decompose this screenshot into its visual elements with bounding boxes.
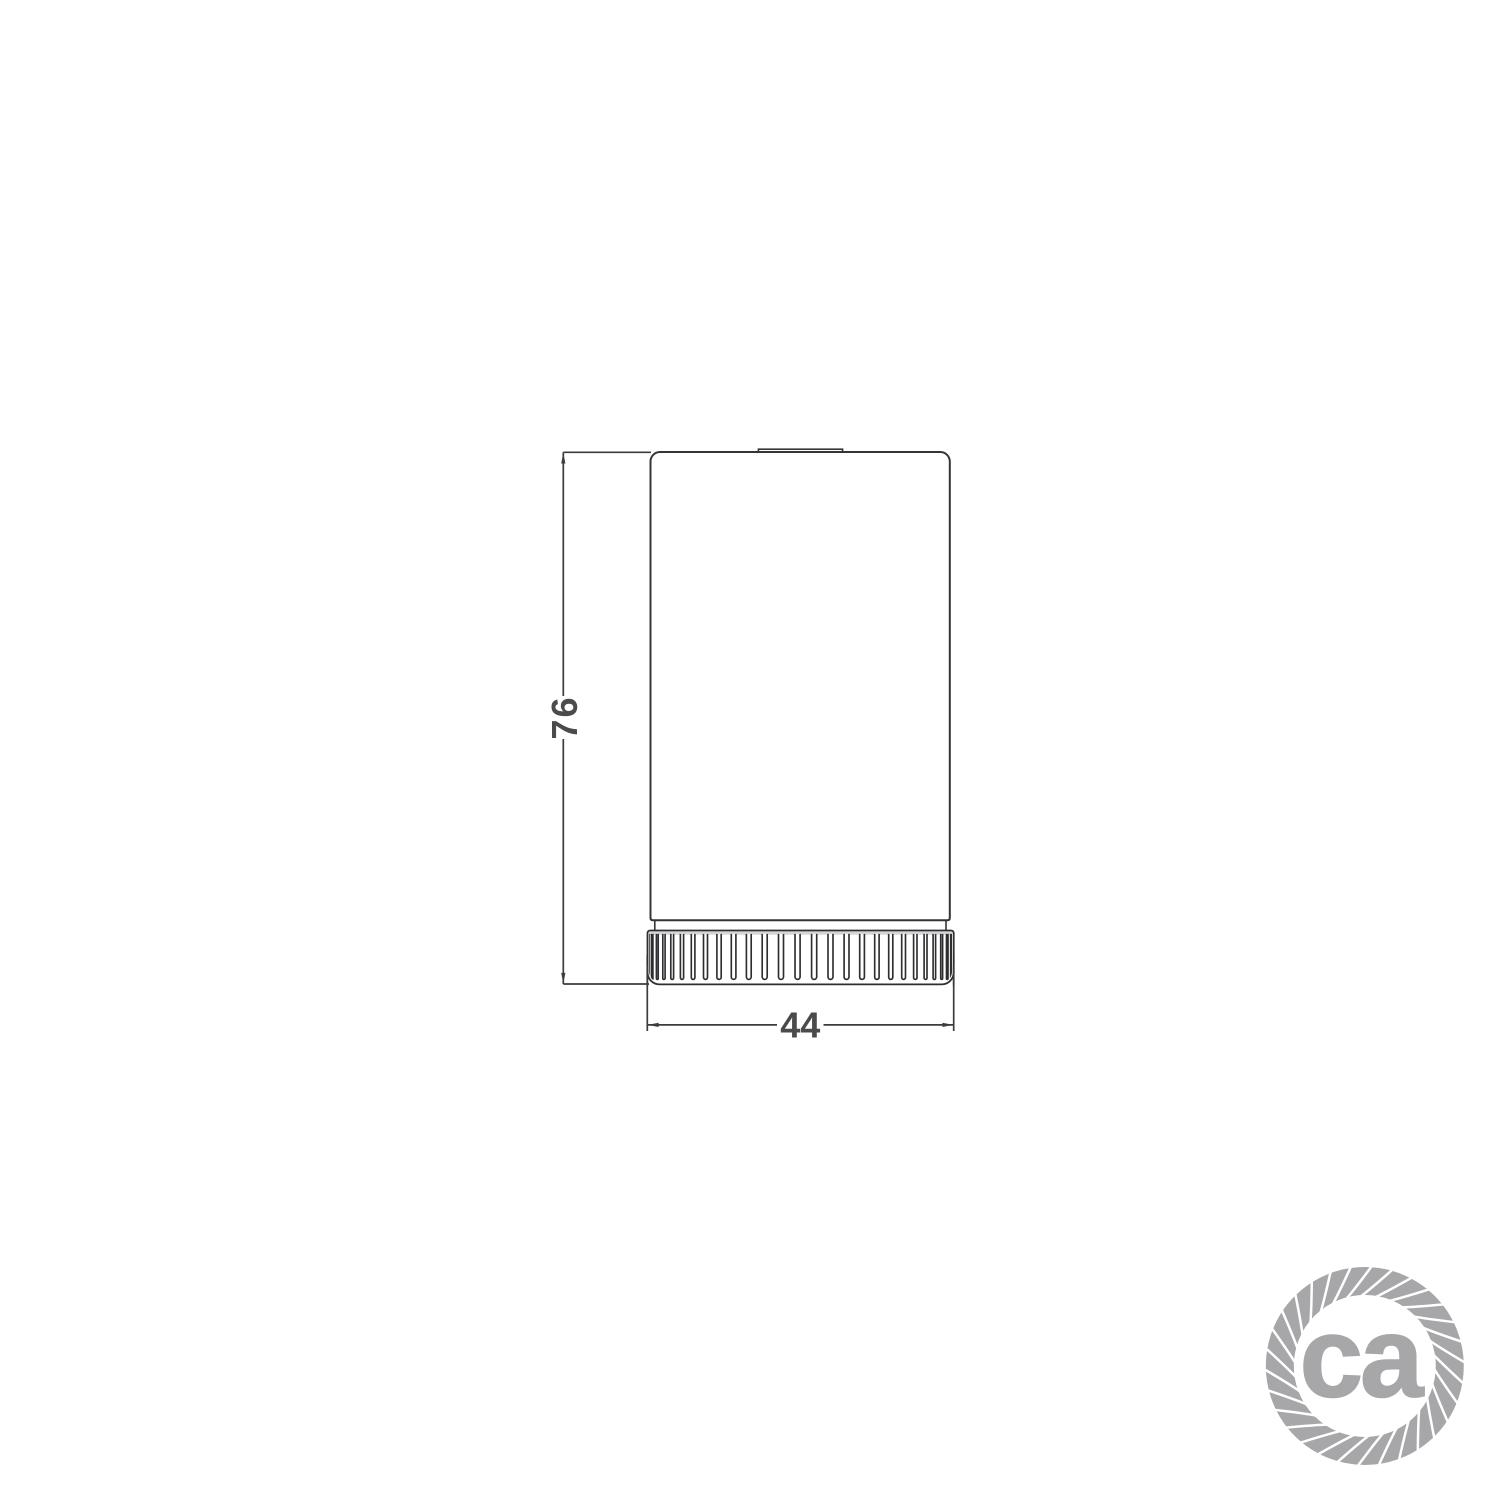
svg-text:76: 76 bbox=[544, 695, 585, 739]
svg-text:ca: ca bbox=[1300, 1295, 1425, 1422]
svg-text:44: 44 bbox=[780, 1005, 820, 1046]
